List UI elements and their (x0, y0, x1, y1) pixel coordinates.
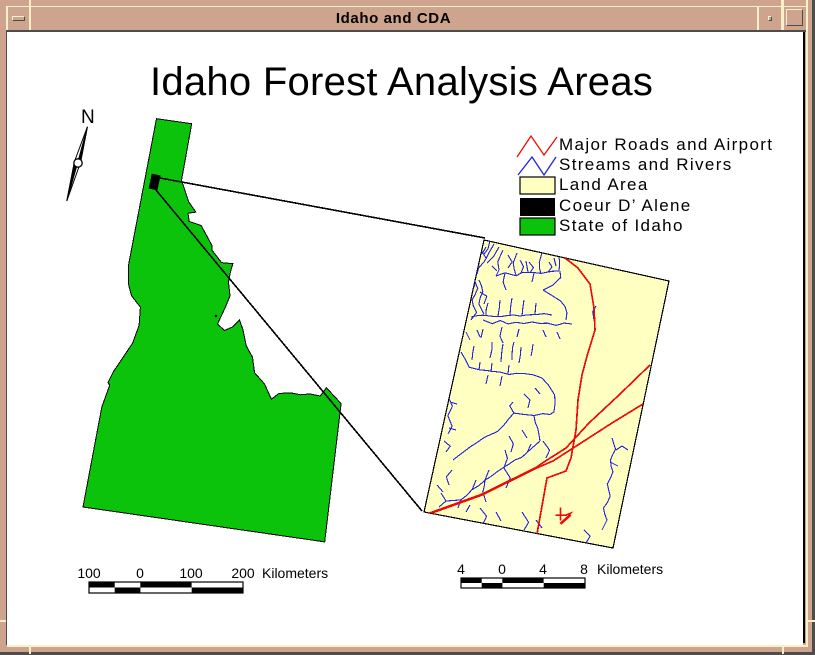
svg-text:Major Roads and Airport: Major Roads and Airport (559, 135, 773, 154)
svg-text:Land Area: Land Area (559, 175, 649, 194)
svg-text:100: 100 (179, 565, 203, 581)
svg-text:Coeur D’ Alene: Coeur D’ Alene (559, 196, 692, 215)
svg-text:200: 200 (231, 565, 255, 581)
svg-text:Idaho Forest Analysis Areas: Idaho Forest Analysis Areas (150, 60, 653, 104)
svg-text:4: 4 (539, 561, 547, 577)
svg-text:Kilometers: Kilometers (262, 565, 328, 581)
svg-text:8: 8 (580, 561, 588, 577)
svg-text:0: 0 (136, 565, 144, 581)
svg-text:Streams and Rivers: Streams and Rivers (559, 155, 733, 174)
svg-text:N: N (81, 107, 95, 128)
svg-text:0: 0 (498, 561, 506, 577)
svg-text:State of Idaho: State of Idaho (559, 216, 684, 235)
svg-text:4: 4 (457, 561, 465, 577)
svg-text:Kilometers: Kilometers (597, 561, 663, 577)
svg-text:100: 100 (77, 565, 101, 581)
